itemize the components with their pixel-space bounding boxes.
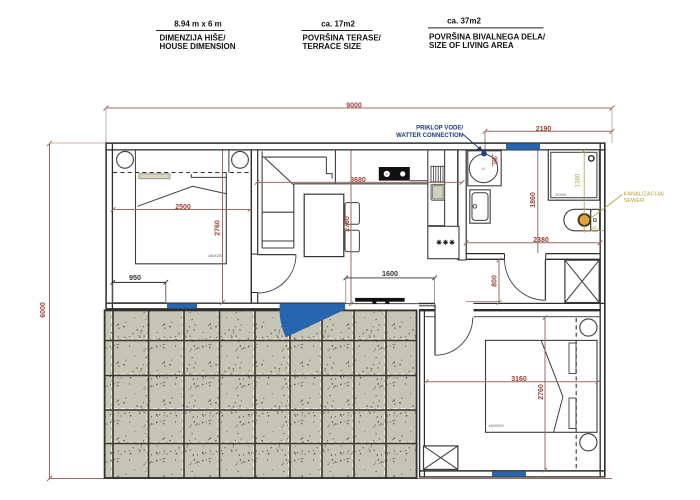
svg-text:558: 558 [591, 225, 599, 230]
svg-text:ca. 37m2: ca. 37m2 [447, 17, 481, 26]
svg-text:PRIKLOP VODE/: PRIKLOP VODE/ [416, 126, 463, 132]
svg-text:1860: 1860 [530, 192, 537, 208]
svg-text:160X200: 160X200 [208, 254, 223, 258]
svg-text:SEWER: SEWER [624, 198, 645, 204]
svg-text:8.94 m x 6 m: 8.94 m x 6 m [174, 20, 222, 29]
svg-text:HOUSE DIMENSION: HOUSE DIMENSION [160, 42, 236, 51]
svg-text:3160: 3160 [511, 376, 527, 383]
svg-text:800: 800 [492, 275, 499, 287]
svg-text:6000: 6000 [40, 302, 47, 318]
svg-text:TERRACE SIZE: TERRACE SIZE [303, 42, 362, 51]
svg-text:2760: 2760 [538, 384, 545, 400]
svg-text:2760: 2760 [344, 216, 351, 232]
svg-text:SIZE OF LIVING AREA: SIZE OF LIVING AREA [429, 41, 514, 50]
svg-text:KANALIZACIJA/: KANALIZACIJA/ [624, 192, 665, 198]
svg-text:160X200: 160X200 [488, 424, 503, 428]
svg-text:ca. 17m2: ca. 17m2 [321, 20, 355, 29]
svg-text:3680: 3680 [350, 177, 366, 184]
svg-text:WATTER CONNECTION: WATTER CONNECTION [396, 133, 463, 139]
svg-text:WL: WL [481, 167, 486, 171]
svg-text:190: 190 [494, 156, 500, 165]
svg-text:1380: 1380 [576, 173, 582, 187]
svg-text:2190: 2190 [536, 126, 552, 133]
svg-text:90X90: 90X90 [555, 193, 566, 197]
svg-text:2380: 2380 [533, 237, 549, 244]
svg-text:950: 950 [129, 273, 141, 282]
svg-text:2500: 2500 [175, 204, 191, 211]
svg-text:2760: 2760 [215, 220, 222, 236]
svg-text:1600: 1600 [382, 269, 398, 278]
svg-text:9000: 9000 [346, 103, 362, 110]
